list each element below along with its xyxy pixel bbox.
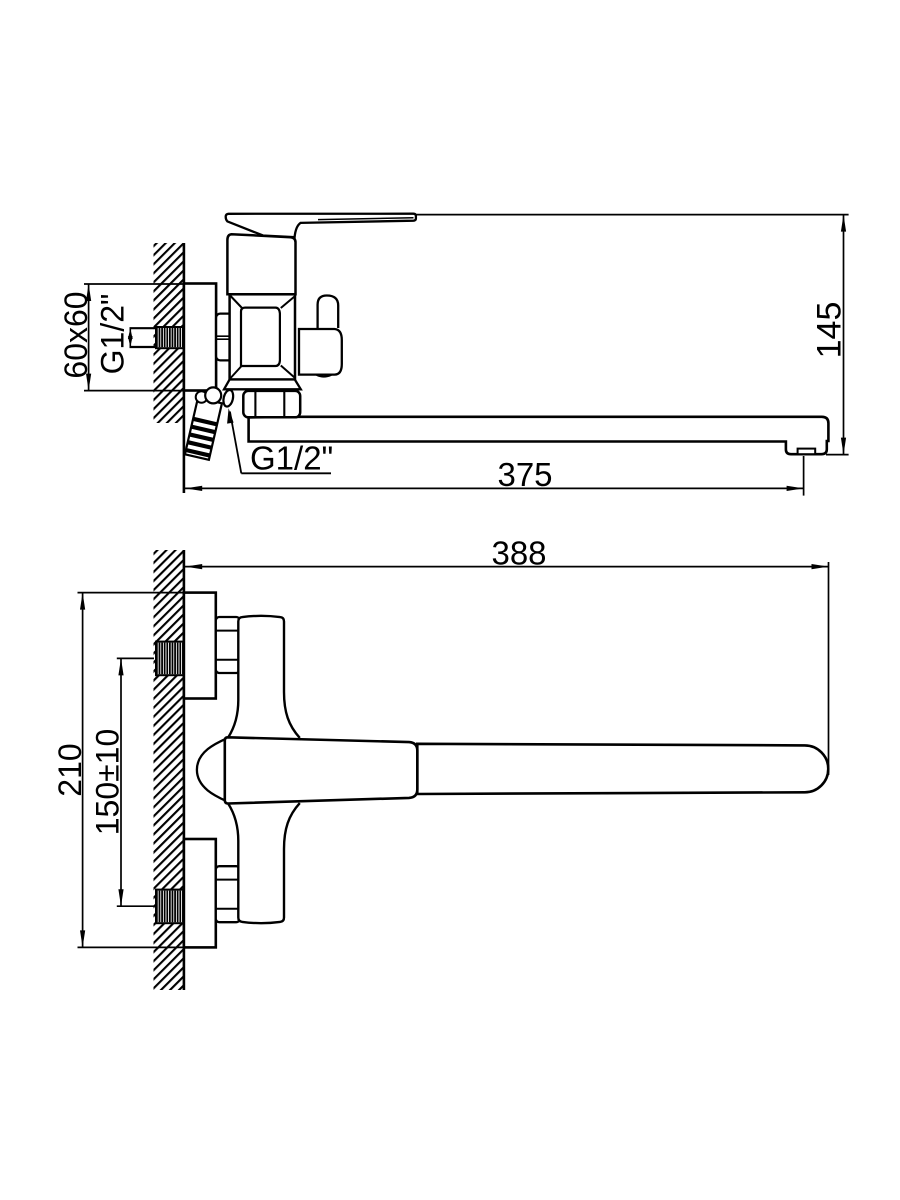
svg-text:60x60: 60x60 xyxy=(58,291,94,378)
svg-text:145: 145 xyxy=(810,302,848,359)
svg-text:210: 210 xyxy=(52,743,88,796)
svg-text:375: 375 xyxy=(497,456,552,493)
svg-text:G1/2": G1/2" xyxy=(250,440,333,477)
svg-text:G1/2": G1/2" xyxy=(95,294,131,375)
svg-text:150±10: 150±10 xyxy=(90,729,126,836)
svg-text:388: 388 xyxy=(491,535,546,572)
